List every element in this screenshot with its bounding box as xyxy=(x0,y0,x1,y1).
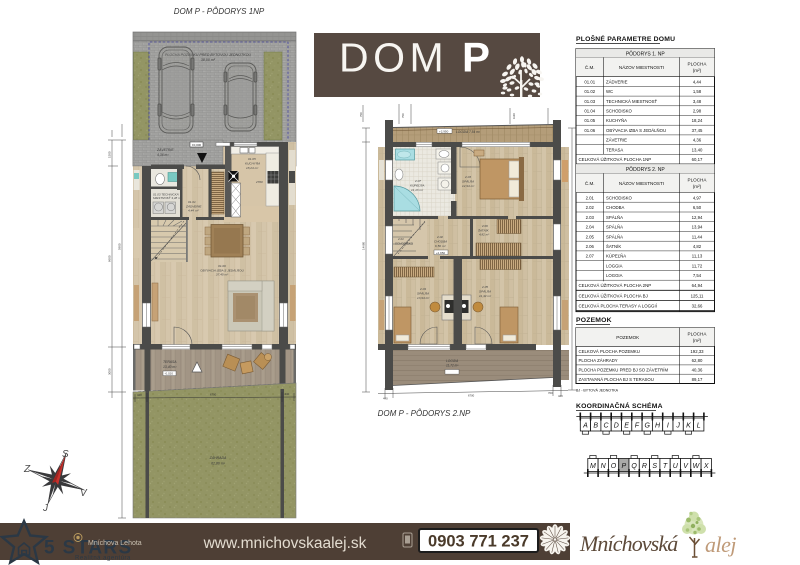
svg-text:TECHNICKÁ MIESTNOSŤ: TECHNICKÁ MIESTNOSŤ xyxy=(606,99,657,104)
svg-text:D: D xyxy=(614,423,619,430)
svg-text:F: F xyxy=(635,423,640,430)
svg-text:DOM P - PÔDORYS 2.NP: DOM P - PÔDORYS 2.NP xyxy=(378,409,471,418)
svg-text:01.06: 01.06 xyxy=(584,128,595,133)
svg-text:ŠATNÍK: ŠATNÍK xyxy=(478,227,490,232)
svg-text:13,94 m²: 13,94 m² xyxy=(417,296,430,300)
svg-text:SCHODISKO: SCHODISKO xyxy=(395,241,414,245)
svg-text:CELKOVÁ ÚŽITKOVÁ PLOCHA BJ: CELKOVÁ ÚŽITKOVÁ PLOCHA BJ xyxy=(579,293,648,298)
svg-text:440: 440 xyxy=(137,393,142,397)
svg-text:1,58: 1,58 xyxy=(693,89,702,94)
svg-text:POZEMOK: POZEMOK xyxy=(616,335,640,340)
svg-text:WC: WC xyxy=(606,89,613,94)
svg-text:125,11: 125,11 xyxy=(691,293,704,298)
svg-text:SPÁLŇA: SPÁLŇA xyxy=(606,215,623,220)
svg-text:14680: 14680 xyxy=(362,242,366,250)
svg-text:PLOCHA: PLOCHA xyxy=(688,178,708,183)
svg-text:4,44 m²: 4,44 m² xyxy=(188,209,199,213)
svg-text:1500: 1500 xyxy=(108,151,112,158)
svg-text:+2,950: +2,950 xyxy=(439,129,449,133)
svg-text:60,17: 60,17 xyxy=(692,157,703,162)
svg-text:ZÁVETRIE: ZÁVETRIE xyxy=(156,148,174,152)
svg-text:4,36: 4,36 xyxy=(693,138,702,143)
svg-text:L: L xyxy=(697,423,701,430)
svg-text:2.02: 2.02 xyxy=(436,235,443,239)
svg-text:ŠATNÍK: ŠATNÍK xyxy=(606,244,621,249)
svg-text:DOM P - PÔDORYS 1NP: DOM P - PÔDORYS 1NP xyxy=(174,7,265,16)
svg-text:alej: alej xyxy=(705,532,736,557)
svg-text:S: S xyxy=(652,463,657,470)
svg-text:Mníchovská: Mníchovská xyxy=(579,531,678,556)
svg-text:(m²): (m²) xyxy=(693,68,702,73)
svg-text:A: A xyxy=(582,423,588,430)
svg-text:(m²): (m²) xyxy=(693,184,702,189)
svg-text:DOM: DOM xyxy=(339,35,448,81)
svg-text:CELKOVÁ PLOCHA TERASY A LOGGIÍ: CELKOVÁ PLOCHA TERASY A LOGGIÍ xyxy=(579,303,658,308)
svg-text:2.03: 2.03 xyxy=(586,215,595,220)
svg-text:T: T xyxy=(663,463,668,470)
svg-text:01.01: 01.01 xyxy=(584,79,595,84)
svg-text:ZÁVETRIE: ZÁVETRIE xyxy=(606,138,627,143)
svg-text:NÁZOV MIESTNOSTI: NÁZOV MIESTNOSTI xyxy=(619,64,664,70)
svg-text:64,94: 64,94 xyxy=(692,283,703,288)
svg-text:OBÝVACIA IZBA S JEDÁLŇOU: OBÝVACIA IZBA S JEDÁLŇOU xyxy=(606,128,666,133)
svg-text:12,94: 12,94 xyxy=(692,215,703,220)
svg-text:2700: 2700 xyxy=(255,180,263,184)
svg-text:4,97: 4,97 xyxy=(693,195,702,200)
svg-text:11,72: 11,72 xyxy=(692,264,703,269)
svg-text:TERASA: TERASA xyxy=(163,360,177,364)
svg-text:750: 750 xyxy=(401,113,405,118)
svg-text:O: O xyxy=(611,463,617,470)
svg-text:TERASA: TERASA xyxy=(606,147,623,152)
svg-text:LOGGIA: LOGGIA xyxy=(606,273,623,278)
svg-text:KÚPEĽŇA: KÚPEĽŇA xyxy=(410,184,424,188)
svg-text:LOGGIA: LOGGIA xyxy=(446,359,458,363)
svg-text:2,98: 2,98 xyxy=(693,109,702,114)
svg-text:4,44: 4,44 xyxy=(693,79,702,84)
svg-text:I: I xyxy=(667,423,669,430)
svg-text:BJ - BYTOVÁ JEDNOTKA: BJ - BYTOVÁ JEDNOTKA xyxy=(576,389,619,393)
svg-text:18,24 m²: 18,24 m² xyxy=(246,166,259,170)
svg-text:P: P xyxy=(462,34,490,81)
svg-text:440: 440 xyxy=(383,397,388,401)
svg-text:3,48: 3,48 xyxy=(693,99,702,104)
svg-text:2.07: 2.07 xyxy=(586,254,595,259)
svg-text:62,80: 62,80 xyxy=(692,358,703,363)
svg-text:2.04: 2.04 xyxy=(586,225,595,230)
svg-text:LOGGIA: LOGGIA xyxy=(606,264,623,269)
svg-text:750: 750 xyxy=(359,112,363,117)
svg-text:Č.M.: Č.M. xyxy=(585,64,595,70)
svg-text:2.02: 2.02 xyxy=(586,205,595,210)
svg-text:ZÁDVERIE: ZÁDVERIE xyxy=(606,79,628,84)
svg-text:E: E xyxy=(624,423,629,430)
svg-text:NÁZOV MIESTNOSTI: NÁZOV MIESTNOSTI xyxy=(619,180,664,186)
svg-text:SPÁLŇA: SPÁLŇA xyxy=(606,225,623,230)
svg-text:J: J xyxy=(42,503,49,514)
svg-text:PLOCHA POZEMKU PRED BJ SO ZÁVE: PLOCHA POZEMKU PRED BJ SO ZÁVETRÍM xyxy=(579,368,669,373)
svg-text:CHODBA: CHODBA xyxy=(434,240,447,244)
svg-text:-0,020: -0,020 xyxy=(165,372,174,376)
svg-text:CELKOVÁ ÚŽITKOVÁ PLOCHA 2NP: CELKOVÁ ÚŽITKOVÁ PLOCHA 2NP xyxy=(579,283,652,288)
svg-text:Z: Z xyxy=(23,464,31,475)
svg-text:J: J xyxy=(675,423,680,430)
svg-text:R: R xyxy=(642,463,647,470)
svg-text:PLOŠNÉ PARAMETRE DOMU: PLOŠNÉ PARAMETRE DOMU xyxy=(576,34,675,43)
svg-text:POZEMOK: POZEMOK xyxy=(576,317,612,324)
svg-text:38,00 m²: 38,00 m² xyxy=(201,58,216,62)
svg-text:700: 700 xyxy=(548,391,553,395)
svg-text:18,24: 18,24 xyxy=(692,118,703,123)
svg-text:±0,000: ±0,000 xyxy=(192,143,201,147)
svg-text:0903 771 237: 0903 771 237 xyxy=(428,533,529,551)
svg-text:3000: 3000 xyxy=(108,368,112,375)
svg-text:4,82 m²: 4,82 m² xyxy=(479,233,490,237)
svg-text:11,13 m²: 11,13 m² xyxy=(411,188,424,192)
svg-text:B: B xyxy=(593,423,598,430)
svg-text:CELKOVÁ ÚŽITKOVÁ PLOCHA 1NP: CELKOVÁ ÚŽITKOVÁ PLOCHA 1NP xyxy=(579,157,652,162)
svg-text:PLOCHA ZÁHRADY: PLOCHA ZÁHRADY xyxy=(579,358,618,363)
svg-text:01.05: 01.05 xyxy=(248,157,256,161)
svg-text:P: P xyxy=(621,463,626,470)
svg-text:01.04: 01.04 xyxy=(584,109,595,114)
svg-text:KUCHYŇA: KUCHYŇA xyxy=(606,118,627,123)
svg-text:11,44 m²: 11,44 m² xyxy=(479,294,492,298)
svg-text:13,40 m²: 13,40 m² xyxy=(163,365,177,369)
svg-text:CHODBA: CHODBA xyxy=(606,205,625,210)
svg-text:ZASTAVANÁ PLOCHA BJ S TERASOU: ZASTAVANÁ PLOCHA BJ S TERASOU xyxy=(579,377,654,382)
svg-text:PLOCHA: PLOCHA xyxy=(688,62,708,67)
svg-text:37,45 m²: 37,45 m² xyxy=(216,273,229,277)
svg-text:SPÁLŇA: SPÁLŇA xyxy=(606,234,623,239)
svg-text:11,44: 11,44 xyxy=(692,234,703,239)
svg-text:62,80 m²: 62,80 m² xyxy=(211,462,226,466)
svg-text:2.03: 2.03 xyxy=(464,175,471,179)
svg-text:(m²): (m²) xyxy=(693,338,702,343)
svg-text:2.06: 2.06 xyxy=(586,244,595,249)
svg-text:440: 440 xyxy=(285,392,290,396)
svg-text:ZÁHRADA: ZÁHRADA xyxy=(209,456,227,460)
svg-text:4,82: 4,82 xyxy=(693,244,702,249)
svg-text:2.07: 2.07 xyxy=(414,179,421,183)
svg-text:89,17: 89,17 xyxy=(692,377,703,382)
svg-text:CELKOVÁ PLOCHA POZEMKU: CELKOVÁ PLOCHA POZEMKU xyxy=(579,349,640,354)
svg-text:01.05: 01.05 xyxy=(584,118,595,123)
svg-text:KÚPEĽŇA: KÚPEĽŇA xyxy=(606,254,626,259)
svg-text:www.mnichovskaalej.sk: www.mnichovskaalej.sk xyxy=(203,535,367,552)
svg-text:01.02: 01.02 xyxy=(584,89,595,94)
svg-text:SPÁLŇA: SPÁLŇA xyxy=(417,292,429,296)
svg-text:PÔDORYS 2. NP: PÔDORYS 2. NP xyxy=(626,166,665,173)
svg-text:440: 440 xyxy=(558,394,563,398)
svg-text:SCHODISKO: SCHODISKO xyxy=(606,195,632,200)
svg-text:13,40: 13,40 xyxy=(692,147,703,152)
svg-text:Mníchova Lehota: Mníchova Lehota xyxy=(88,540,142,547)
svg-text:S: S xyxy=(62,449,69,460)
svg-text:2.05: 2.05 xyxy=(586,234,595,239)
svg-text:01.01: 01.01 xyxy=(188,200,196,204)
svg-text:Realitná agentúra: Realitná agentúra xyxy=(75,556,131,562)
svg-text:PÔDORYS 1. NP: PÔDORYS 1. NP xyxy=(626,50,665,57)
svg-text:M: M xyxy=(590,463,596,470)
svg-text:01.03: 01.03 xyxy=(584,99,595,104)
svg-text:+2,950: +2,950 xyxy=(436,251,446,255)
svg-text:40,36: 40,36 xyxy=(692,368,703,373)
svg-text:13,94: 13,94 xyxy=(692,225,703,230)
svg-text:2.01: 2.01 xyxy=(586,195,595,200)
svg-text:1100: 1100 xyxy=(512,113,516,119)
svg-text:5900: 5900 xyxy=(118,243,122,250)
svg-text:K: K xyxy=(686,423,691,430)
svg-text:4,36 m²: 4,36 m² xyxy=(157,153,169,157)
svg-text:G: G xyxy=(644,423,650,430)
svg-text:6,50: 6,50 xyxy=(693,205,702,210)
svg-text:Č.M.: Č.M. xyxy=(585,180,595,186)
svg-text:Q: Q xyxy=(631,463,637,470)
svg-text:SPÁLŇA: SPÁLŇA xyxy=(479,290,491,294)
svg-text:7,54: 7,54 xyxy=(693,273,702,278)
svg-text:11,13: 11,13 xyxy=(692,254,703,259)
svg-text:SCHODISKO: SCHODISKO xyxy=(606,109,632,114)
svg-text:2.04: 2.04 xyxy=(419,287,426,291)
svg-text:KOORDINAČNÁ SCHÉMA: KOORDINAČNÁ SCHÉMA xyxy=(576,401,663,410)
svg-text:PLOCHA: PLOCHA xyxy=(688,332,708,337)
svg-text:8600: 8600 xyxy=(108,255,112,262)
svg-text:MIESTNOSŤ 3,48 m²: MIESTNOSŤ 3,48 m² xyxy=(153,195,183,200)
svg-text:192,33: 192,33 xyxy=(690,349,704,354)
svg-text:6,50 m²: 6,50 m² xyxy=(435,244,446,248)
svg-text:12,94 m²: 12,94 m² xyxy=(462,184,475,188)
svg-text:11,72 m²: 11,72 m² xyxy=(446,364,459,368)
svg-text:X: X xyxy=(703,463,709,470)
svg-text:LOGGIA 7,54 m²: LOGGIA 7,54 m² xyxy=(456,130,481,134)
svg-text:32,66: 32,66 xyxy=(692,303,703,308)
svg-text:2.05: 2.05 xyxy=(481,285,488,289)
svg-text:37,45: 37,45 xyxy=(692,128,703,133)
svg-text:6700: 6700 xyxy=(210,393,217,397)
svg-text:6700: 6700 xyxy=(468,394,475,398)
svg-text:SPÁLŇA: SPÁLŇA xyxy=(462,180,474,184)
